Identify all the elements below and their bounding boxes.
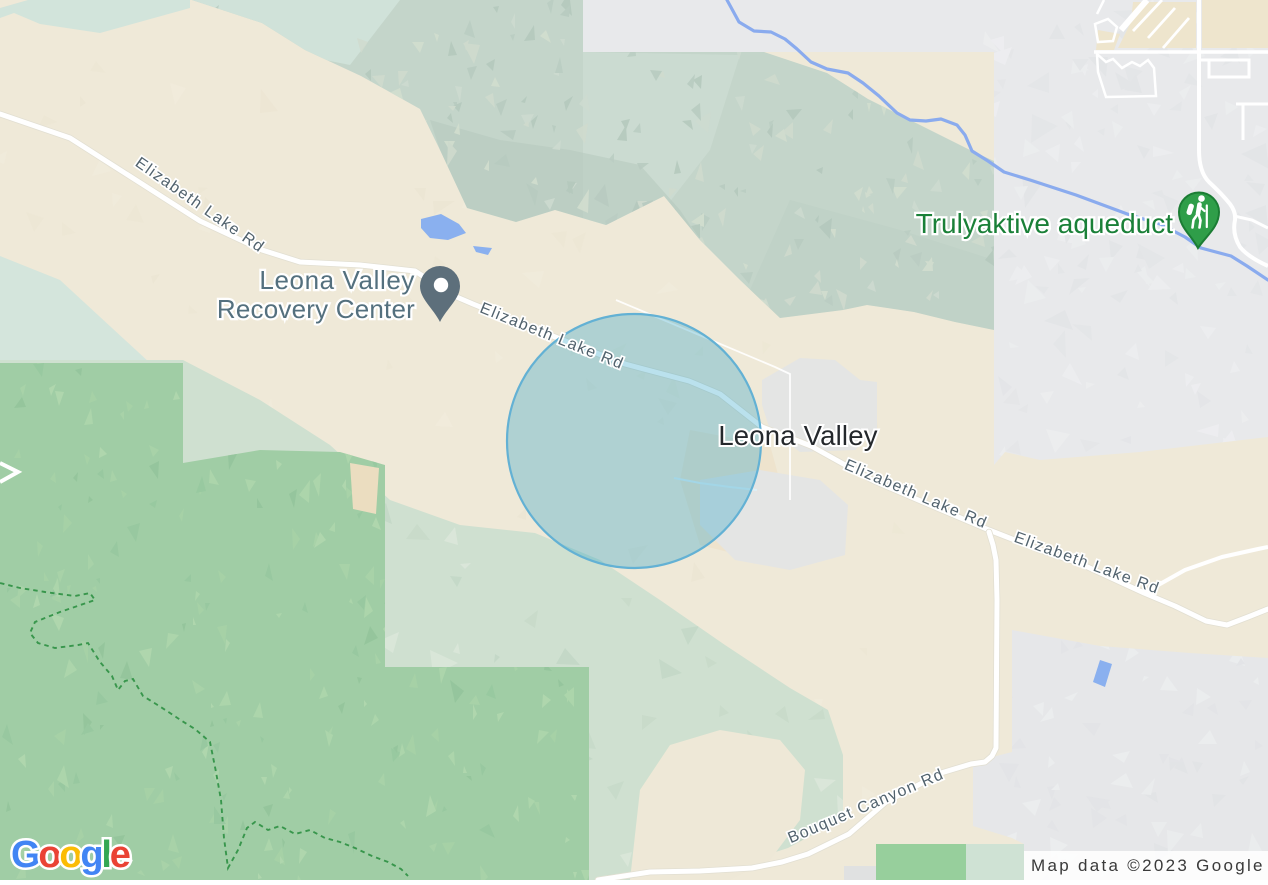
svg-text:Trulyaktive aqueduct: Trulyaktive aqueduct — [916, 208, 1174, 239]
svg-text:Recovery Center: Recovery Center — [217, 294, 415, 324]
svg-text:Google: Google — [11, 834, 130, 876]
svg-text:Map data ©2023 Google: Map data ©2023 Google — [1031, 856, 1265, 875]
svg-text:Leona Valley: Leona Valley — [259, 265, 415, 295]
svg-text:Leona Valley: Leona Valley — [718, 420, 877, 451]
